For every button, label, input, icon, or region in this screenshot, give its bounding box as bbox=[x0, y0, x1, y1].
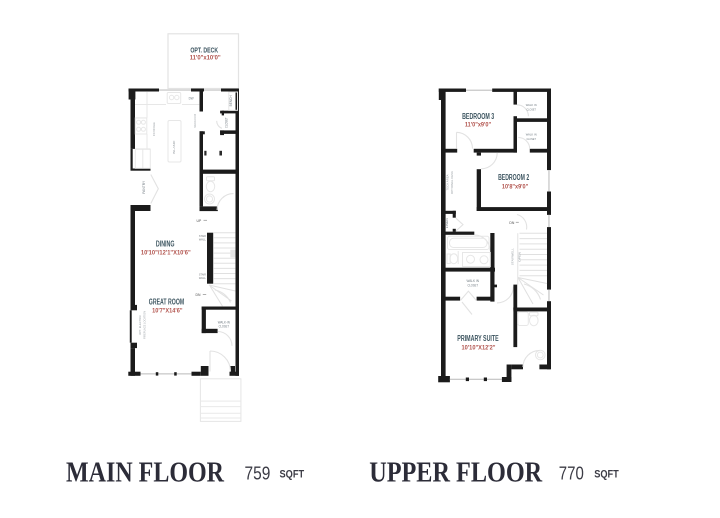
svg-text:770: 770 bbox=[559, 464, 584, 484]
svg-text:11'0"x9'0": 11'0"x9'0" bbox=[465, 122, 491, 129]
svg-text:OPTIONAL DESK: OPTIONAL DESK bbox=[450, 171, 454, 194]
svg-text:WALL: WALL bbox=[199, 238, 206, 242]
svg-text:10'10"X12'2": 10'10"X12'2" bbox=[462, 344, 496, 351]
svg-text:BEDROOM 3: BEDROOM 3 bbox=[462, 112, 494, 121]
svg-text:10'10"/12'1"X10'6": 10'10"/12'1"X10'6" bbox=[141, 249, 191, 256]
svg-text:SQFT: SQFT bbox=[594, 469, 619, 481]
svg-text:DINING: DINING bbox=[156, 239, 175, 248]
svg-text:CLOSET: CLOSET bbox=[526, 137, 536, 141]
svg-text:OPT. DECK: OPT. DECK bbox=[190, 45, 218, 54]
svg-text:SQFT: SQFT bbox=[280, 469, 305, 481]
svg-text:10'8"x9'0": 10'8"x9'0" bbox=[502, 184, 528, 191]
svg-text:DW: DW bbox=[189, 96, 195, 100]
svg-text:ISLAND: ISLAND bbox=[172, 140, 176, 155]
svg-text:DN: DN bbox=[509, 221, 514, 225]
svg-text:WALK IN: WALK IN bbox=[466, 279, 479, 283]
svg-text:LINEN: LINEN bbox=[445, 218, 449, 228]
svg-text:11'0"x10'0": 11'0"x10'0" bbox=[190, 55, 221, 61]
svg-text:OPEN: OPEN bbox=[517, 252, 521, 262]
svg-text:FRIDGE: FRIDGE bbox=[152, 122, 156, 136]
svg-text:MAIN FLOOR: MAIN FLOOR bbox=[66, 457, 225, 488]
svg-text:GREAT ROOM: GREAT ROOM bbox=[149, 298, 185, 307]
svg-text:CLOSET: CLOSET bbox=[467, 283, 478, 287]
svg-text:MUDROOM: MUDROOM bbox=[193, 114, 197, 128]
svg-text:STAIRWELL: STAIRWELL bbox=[511, 248, 515, 265]
svg-text:FIREPLACE LOCATION: FIREPLACE LOCATION bbox=[142, 311, 146, 339]
svg-text:BENCH: BENCH bbox=[229, 95, 233, 107]
svg-text:CLOSET: CLOSET bbox=[225, 117, 229, 128]
svg-text:DN: DN bbox=[196, 293, 201, 297]
svg-text:10'7"X14'6": 10'7"X14'6" bbox=[152, 308, 182, 315]
svg-text:759: 759 bbox=[245, 464, 271, 484]
svg-text:OPT. ELECTRIC: OPT. ELECTRIC bbox=[138, 315, 142, 335]
svg-text:CLOSET: CLOSET bbox=[219, 325, 229, 329]
svg-text:PRIMARY SUITE: PRIMARY SUITE bbox=[457, 334, 499, 343]
svg-text:CLOSET: CLOSET bbox=[526, 107, 536, 111]
svg-text:WALL: WALL bbox=[199, 276, 206, 280]
svg-text:BEDROOM 2: BEDROOM 2 bbox=[498, 173, 529, 182]
svg-text:PANTRY: PANTRY bbox=[142, 180, 146, 194]
svg-text:UP: UP bbox=[197, 219, 202, 223]
svg-text:UPPER FLOOR: UPPER FLOOR bbox=[369, 457, 543, 488]
